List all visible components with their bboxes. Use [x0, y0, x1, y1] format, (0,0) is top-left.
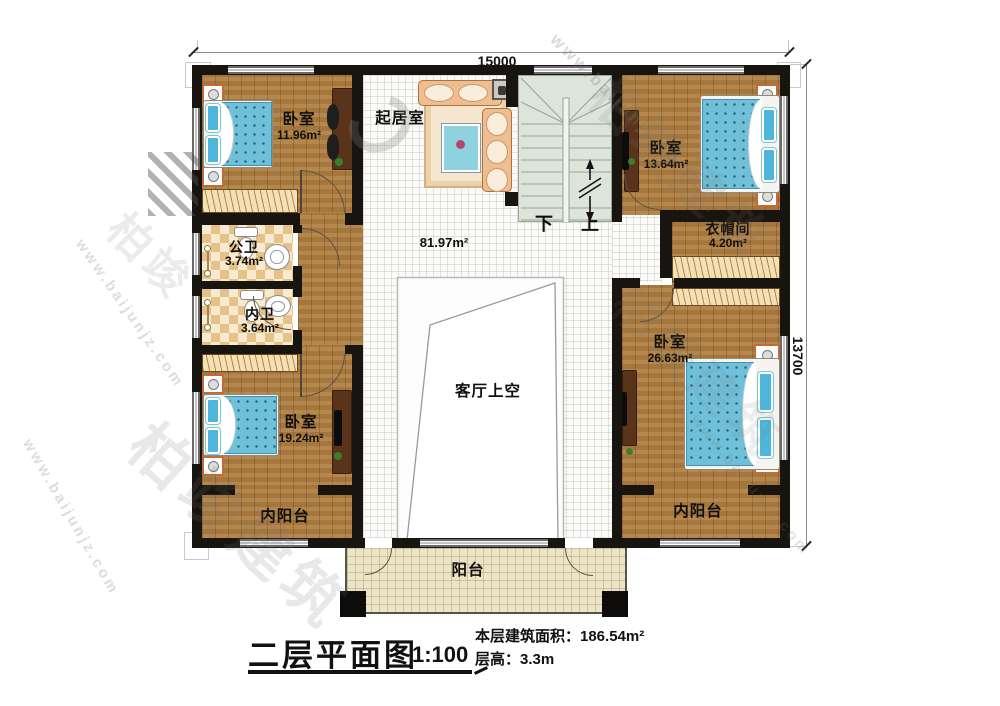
pillow — [206, 104, 220, 132]
staircase — [518, 75, 612, 222]
toilet-tank — [234, 227, 258, 237]
room-label-bedroom-br: 卧室 26.63m² — [620, 334, 720, 366]
room-area: 3.74m² — [212, 255, 276, 269]
pillow — [758, 372, 773, 412]
wall-interior — [612, 288, 622, 538]
room-name: 内卫 — [228, 306, 292, 322]
room-name: 公卫 — [212, 239, 276, 255]
plant-icon — [334, 452, 342, 460]
wall-interior — [293, 266, 302, 297]
room-name: 衣帽间 — [678, 221, 778, 237]
plan-title: 二层平面图 — [248, 630, 418, 675]
wardrobe — [202, 189, 298, 213]
wall-interior — [674, 278, 780, 288]
room-label-bedroom-bl: 卧室 19.24m² — [251, 414, 351, 446]
stair-down-label: 下 — [531, 214, 557, 235]
window — [420, 539, 548, 547]
wall-interior — [345, 213, 363, 225]
plan-scale: 1:100 — [412, 642, 468, 668]
wall-interior — [612, 278, 640, 288]
rail-knob — [204, 299, 211, 306]
watermark-url: www.baijunjz.com — [19, 436, 122, 598]
pillow — [758, 418, 773, 458]
room-label-bedroom-tr: 卧室 13.64m² — [616, 140, 716, 172]
wardrobe — [202, 354, 298, 372]
rail-knob — [204, 245, 211, 252]
pillow — [762, 148, 776, 182]
plan-area-line: 本层建筑面积：186.54m² — [475, 626, 644, 649]
plan-height-line: 层高：3.3m — [475, 649, 644, 672]
lamp-icon — [208, 461, 219, 472]
lamp-icon — [208, 379, 219, 390]
room-name: 卧室 — [616, 140, 716, 158]
plan-info: 本层建筑面积：186.54m² 层高：3.3m — [475, 626, 644, 671]
stair-up-label: 上 — [577, 214, 603, 235]
wall-interior — [352, 354, 363, 538]
door-leaf — [300, 354, 302, 397]
sofa-cushion — [424, 84, 454, 102]
rail-knob — [204, 270, 211, 277]
plant-icon — [335, 158, 343, 166]
watermark-url: www.baijunjz.com — [72, 236, 188, 391]
wall-interior — [202, 213, 300, 225]
pillow — [206, 398, 220, 424]
nightstand — [202, 166, 224, 187]
room-label-inner-balcony-left: 内阳台 — [245, 508, 325, 526]
title-underline — [248, 670, 472, 674]
wall-interior — [505, 192, 518, 206]
door-opening — [365, 538, 392, 548]
wall-interior — [660, 222, 672, 278]
floor-plan: { "title_block": { "title": "二层平面图", "sc… — [0, 0, 1000, 706]
equipment-inner — [498, 86, 506, 95]
door-leaf — [300, 170, 302, 213]
plant-icon — [626, 448, 633, 455]
wall-interior — [202, 345, 300, 354]
window — [780, 336, 788, 460]
void-outline — [396, 276, 566, 544]
rail-knob — [204, 324, 211, 331]
window — [240, 539, 308, 547]
closet — [672, 288, 780, 306]
dimension-height: 13700 — [790, 332, 806, 380]
room-label-balcony: 阳台 — [434, 562, 502, 580]
wall-interior — [318, 485, 352, 495]
room-name: 卧室 — [251, 414, 351, 432]
window — [780, 96, 788, 184]
wall-interior — [506, 65, 518, 107]
room-label-cloakroom: 衣帽间 4.20m² — [678, 221, 778, 251]
room-area: 19.24m² — [251, 432, 351, 446]
sofa-cushion — [486, 168, 508, 192]
wall-interior — [293, 225, 302, 233]
flower-icon — [456, 140, 465, 149]
room-area: 11.96m² — [249, 129, 349, 143]
stair-treads — [519, 76, 613, 223]
lamp-icon — [208, 89, 219, 100]
wall-interior — [748, 485, 780, 495]
pillow — [206, 428, 220, 454]
balcony-column — [602, 591, 628, 617]
window — [660, 539, 740, 547]
room-name: 卧室 — [249, 111, 349, 129]
watermark-stripe-icon — [148, 152, 198, 216]
wall-interior — [622, 485, 654, 495]
door-opening — [565, 538, 593, 548]
room-label-bedroom-tl: 卧室 11.96m² — [249, 111, 349, 143]
sofa-cushion — [486, 112, 508, 136]
room-area: 4.20m² — [678, 237, 778, 251]
room-label-void: 客厅上空 — [438, 383, 538, 401]
sofa-cushion — [458, 84, 488, 102]
window — [658, 66, 744, 74]
room-area: 26.63m² — [620, 352, 720, 366]
hall-area-label: 81.97m² — [406, 236, 482, 251]
wall-interior — [345, 345, 363, 354]
dimension-width: 15000 — [467, 53, 527, 69]
window — [228, 66, 314, 74]
balcony-column — [340, 591, 366, 617]
room-label-bath-private: 内卫 3.64m² — [228, 306, 292, 336]
window — [192, 296, 200, 338]
room-area: 13.64m² — [616, 158, 716, 172]
wall-interior — [202, 281, 293, 289]
window — [534, 66, 592, 74]
pillow — [206, 136, 220, 164]
nightstand — [202, 374, 224, 394]
room-area: 3.64m² — [228, 322, 292, 336]
wall-interior — [202, 485, 235, 495]
dimension-line-right — [806, 65, 807, 548]
window — [192, 392, 200, 464]
pillow — [762, 108, 776, 142]
nightstand — [202, 456, 224, 476]
lamp-icon — [208, 171, 219, 182]
room-name: 卧室 — [620, 334, 720, 352]
window — [192, 233, 200, 275]
sofa-cushion — [486, 140, 508, 164]
room-label-bath-public: 公卫 3.74m² — [212, 239, 276, 269]
room-label-inner-balcony-right: 内阳台 — [658, 503, 738, 521]
